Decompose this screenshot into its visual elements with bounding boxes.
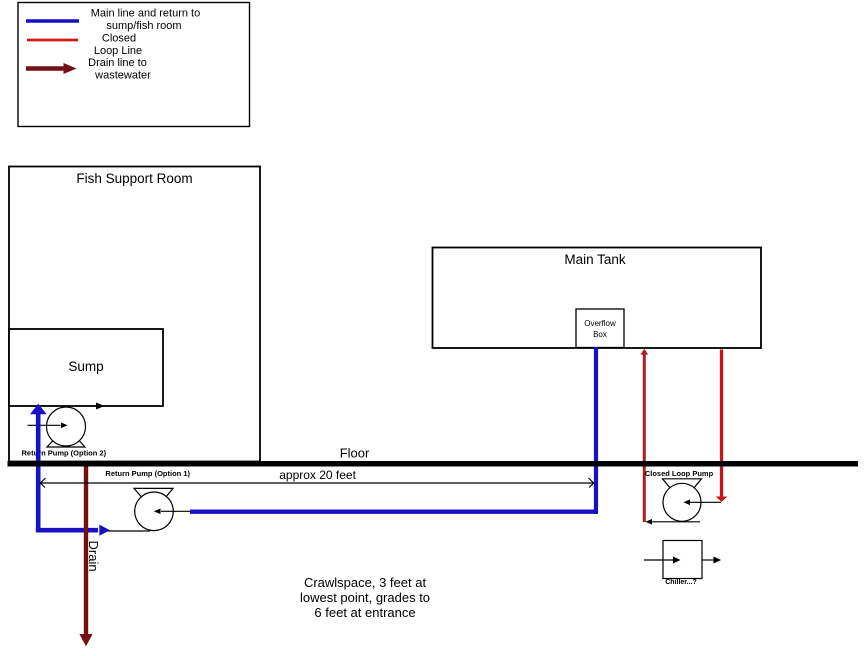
- svg-text:Floor: Floor: [340, 446, 370, 461]
- svg-text:Return Pump (Option 2): Return Pump (Option 2): [22, 449, 107, 458]
- svg-text:Overflow: Overflow: [584, 319, 616, 328]
- svg-text:Crawlspace, 3 feet at: Crawlspace, 3 feet at: [304, 575, 427, 590]
- svg-text:Box: Box: [593, 330, 607, 339]
- svg-text:Closed: Closed: [102, 33, 136, 45]
- svg-text:Drain line to: Drain line to: [88, 57, 147, 69]
- svg-text:wastewater: wastewater: [94, 70, 151, 82]
- svg-text:Chiller...?: Chiller...?: [665, 579, 697, 586]
- svg-text:approx 20 feet: approx 20 feet: [279, 468, 356, 482]
- svg-text:Fish Support Room: Fish Support Room: [76, 171, 192, 186]
- svg-text:lowest point, grades to: lowest point, grades to: [300, 590, 430, 605]
- svg-text:Return Pump (Option 1): Return Pump (Option 1): [105, 469, 190, 478]
- svg-text:Main line and return to: Main line and return to: [91, 8, 200, 20]
- svg-text:sump/fish room: sump/fish room: [106, 20, 181, 32]
- svg-text:Closed Loop Pump: Closed Loop Pump: [645, 469, 714, 478]
- svg-text:Main Tank: Main Tank: [564, 252, 626, 267]
- svg-text:6 feet at entrance: 6 feet at entrance: [314, 605, 415, 620]
- svg-text:Loop Line: Loop Line: [94, 45, 142, 57]
- svg-text:Sump: Sump: [68, 359, 103, 374]
- svg-text:Drain: Drain: [86, 541, 101, 572]
